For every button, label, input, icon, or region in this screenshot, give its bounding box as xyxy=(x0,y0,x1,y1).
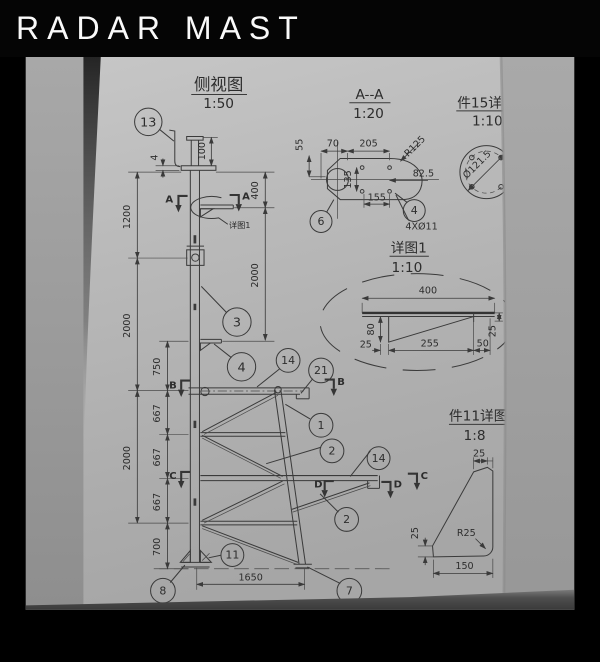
balloon-14a: 14 xyxy=(281,354,295,367)
balloon-21: 21 xyxy=(314,364,328,377)
dim-82-5: 82.5 xyxy=(413,169,434,180)
balloon-8: 8 xyxy=(159,584,166,597)
svg-text:B: B xyxy=(169,381,177,392)
right-margin-strip xyxy=(501,57,574,610)
svg-text:C: C xyxy=(421,471,428,482)
dim-25-top: 25 xyxy=(473,448,485,459)
dim-2000b: 2000 xyxy=(122,446,133,470)
dim-70: 70 xyxy=(327,139,339,150)
dim-205: 205 xyxy=(359,139,377,150)
drawing-photo: 侧视图 1:50 xyxy=(0,57,600,662)
header-title: RADAR MAST xyxy=(16,10,306,47)
balloon-7: 7 xyxy=(346,584,353,597)
balloon-1: 1 xyxy=(318,419,325,432)
dim-4: 4 xyxy=(149,154,160,160)
balloon-2b: 2 xyxy=(343,513,350,526)
svg-text:A: A xyxy=(242,192,250,203)
part11-scale: 1:8 xyxy=(464,428,486,444)
dim-d25a: 25 xyxy=(360,340,372,351)
dim-25-left: 25 xyxy=(410,527,421,539)
dim-700: 700 xyxy=(152,538,163,556)
balloon-11: 11 xyxy=(225,549,239,562)
svg-text:A: A xyxy=(165,194,173,205)
balloon-3: 3 xyxy=(233,316,241,331)
balloon-13: 13 xyxy=(140,115,156,130)
balloon-2a: 2 xyxy=(329,445,336,458)
detail1-title: 详图1 xyxy=(391,241,427,257)
dim-d50: 50 xyxy=(477,339,489,350)
dim-750: 750 xyxy=(152,358,163,376)
part11-title: 件11详图 xyxy=(449,409,507,425)
balloon-14b: 14 xyxy=(372,452,386,465)
left-margin-strip xyxy=(26,57,84,610)
dim-667c: 667 xyxy=(152,493,163,511)
svg-text:D: D xyxy=(314,479,322,490)
dim-d255: 255 xyxy=(421,339,439,350)
svg-text:C: C xyxy=(169,471,176,482)
holes-label: 4XØ11 xyxy=(405,222,437,233)
aa-scale: 1:20 xyxy=(353,106,384,122)
dim-100: 100 xyxy=(197,142,208,160)
dim-667a: 667 xyxy=(152,404,163,422)
dim-667b: 667 xyxy=(152,448,163,466)
dim-d80: 80 xyxy=(366,323,377,335)
detail1-ref-label: 详图1 xyxy=(229,220,251,230)
dim-155: 155 xyxy=(368,192,386,203)
dim-1200: 1200 xyxy=(122,205,133,229)
part15-scale: 1:10 xyxy=(472,114,503,130)
dim-d400: 400 xyxy=(419,286,437,297)
dim-1650: 1650 xyxy=(238,573,262,584)
dim-r25: R25 xyxy=(457,528,476,539)
dim-2000a: 2000 xyxy=(122,313,133,337)
dim-55: 55 xyxy=(295,139,306,151)
svg-text:D: D xyxy=(394,479,402,490)
balloon-4a: 4 xyxy=(237,360,245,375)
dim-135: 135 xyxy=(343,170,354,188)
balloon-6: 6 xyxy=(318,215,325,228)
balloon-4b: 4 xyxy=(411,204,418,217)
dim-400: 400 xyxy=(250,181,261,199)
dim-d25b: 25 xyxy=(488,325,499,337)
product-image: RADAR MAST xyxy=(0,0,600,662)
header-bar: RADAR MAST xyxy=(0,0,600,57)
side-view-scale: 1:50 xyxy=(203,96,234,112)
aa-title: A--A xyxy=(355,87,384,103)
dim-2000c: 2000 xyxy=(250,263,261,287)
dim-150: 150 xyxy=(455,561,473,572)
side-view-title: 侧视图 xyxy=(194,75,243,94)
svg-text:B: B xyxy=(337,377,345,388)
